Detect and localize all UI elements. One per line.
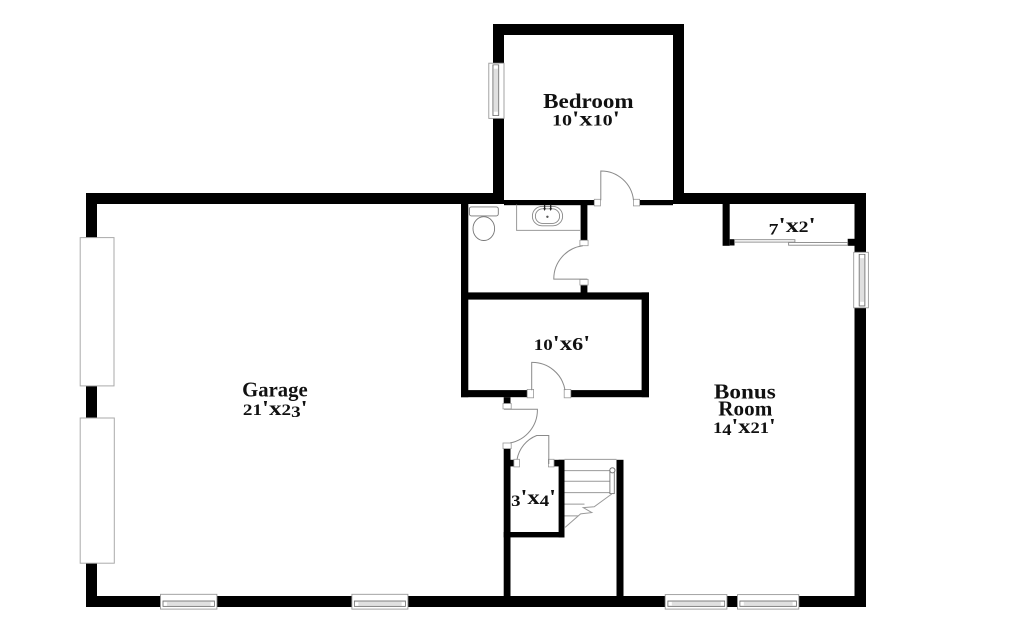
svg-text:10'x10': 10'x10' bbox=[552, 109, 620, 131]
svg-text:10'x6': 10'x6' bbox=[534, 333, 590, 355]
